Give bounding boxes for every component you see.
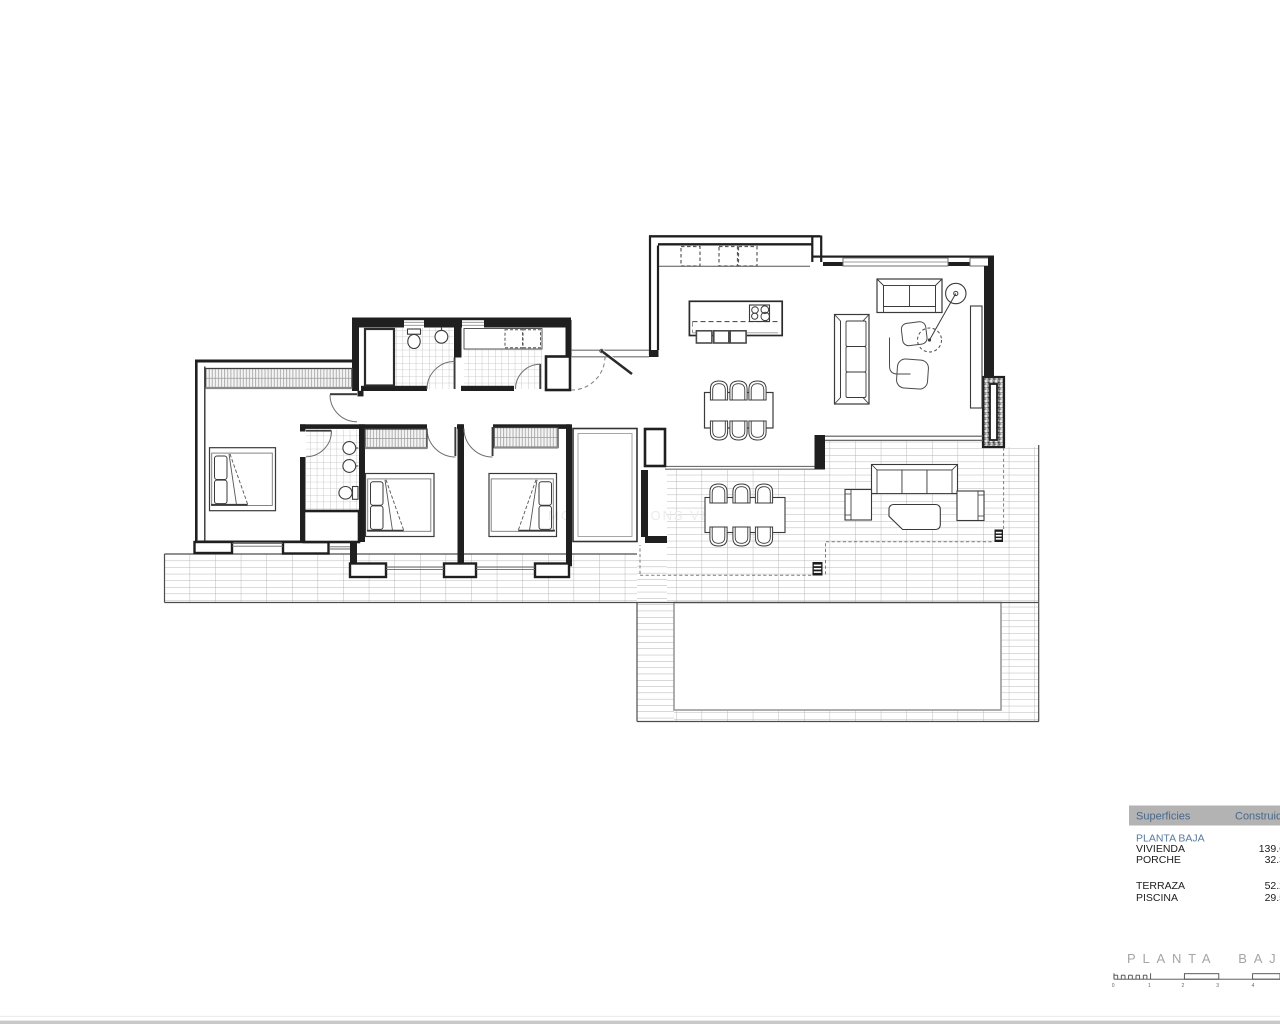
svg-text:3: 3: [1216, 983, 1219, 989]
svg-text:139.6: 139.6: [1259, 843, 1280, 855]
svg-text:1: 1: [1148, 983, 1151, 989]
svg-text:PLANTA BAJA: PLANTA BAJA: [1127, 951, 1280, 966]
svg-text:PISCINA: PISCINA: [1136, 892, 1178, 904]
svg-text:52.2: 52.2: [1265, 880, 1280, 892]
svg-text:Superficies: Superficies: [1136, 811, 1191, 823]
svg-text:VIVIENDA: VIVIENDA: [1136, 843, 1185, 855]
svg-text:32.3: 32.3: [1265, 854, 1280, 866]
svg-text:Construida: Construida: [1235, 811, 1280, 823]
svg-text:0: 0: [1112, 983, 1115, 989]
svg-text:4: 4: [1252, 983, 1255, 989]
svg-text:29.5: 29.5: [1265, 892, 1280, 904]
svg-text:2: 2: [1182, 983, 1185, 989]
svg-text:TERRAZA: TERRAZA: [1136, 880, 1185, 892]
svg-text:PORCHE: PORCHE: [1136, 854, 1181, 866]
